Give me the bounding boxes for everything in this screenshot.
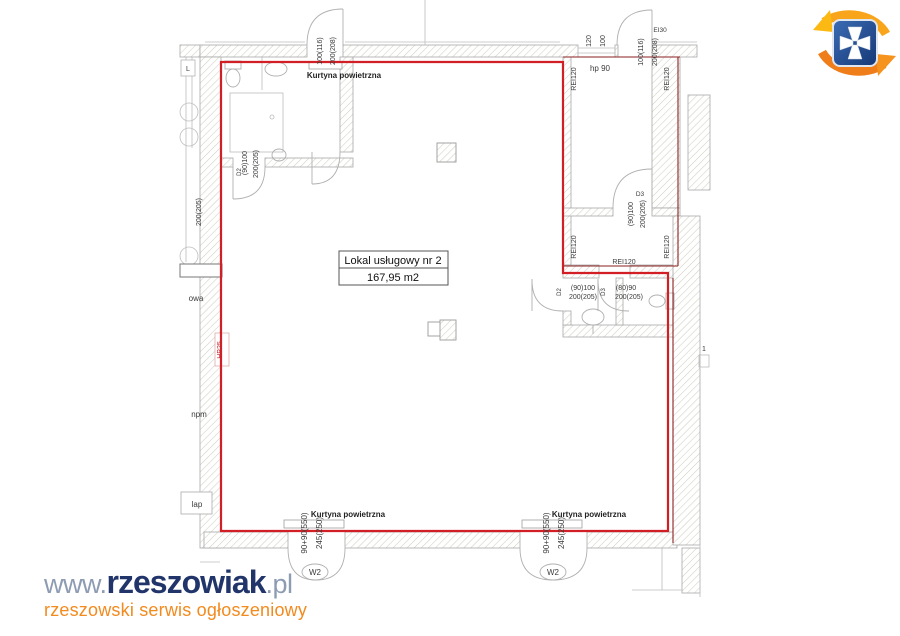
watermark-site: www.rzeszowiak.pl (44, 566, 307, 598)
crest-swoosh-top-arrow (813, 10, 833, 32)
watermark-www: www. (44, 569, 107, 599)
w2-dim-label: 245(250) (557, 517, 566, 549)
toilet (649, 295, 665, 307)
door-dim-label: 200(205) (615, 294, 643, 301)
rei120-label: REI120 (664, 235, 671, 258)
rei120-label: REI120 (612, 259, 635, 266)
door-dim-label: 200(208) (652, 38, 659, 66)
npm-label: npm (191, 410, 207, 419)
door-dim-label: 200(208) (330, 37, 337, 65)
door-dim-label: (90)100 (628, 202, 635, 226)
room-1-label: 1 (702, 346, 706, 353)
sink (582, 309, 604, 325)
door-dim-label: (90)100 (242, 151, 249, 175)
door-dim-label: 200(205) (640, 200, 647, 228)
w2-dim-label: 245(250) (315, 517, 324, 549)
watermark-tagline: rzeszowski serwis ogłoszeniowy (44, 601, 307, 619)
floor-plan-page: Lokal usługowy nr 2 167,95 m2 Kurtyna po… (0, 0, 900, 636)
w2-tag: W2 (547, 568, 560, 577)
door-code-label: D3 (601, 288, 607, 296)
watermark-logo: www.rzeszowiak.pl rzeszowski serwis ogło… (44, 566, 307, 619)
watermark-brand: rzeszowiak (107, 564, 266, 600)
air-curtain-label: Kurtyna powietrzna (307, 71, 382, 80)
watermark-tld: .pl (265, 569, 292, 599)
w2-tag: W2 (309, 568, 322, 577)
window-dim-label: 100 (600, 35, 607, 47)
door-code-label: D3 (636, 191, 645, 198)
sink (265, 62, 287, 76)
owa-wall (180, 264, 222, 277)
w2-dim-label: 90+90(550) (542, 512, 551, 553)
city-crest-logo (813, 10, 896, 76)
unit-area: 167,95 m2 (367, 272, 419, 284)
window-dim-label: 120 (586, 35, 593, 47)
parapet-label: hp 90 (590, 64, 611, 73)
door-dim-label: (80)90 (616, 285, 636, 292)
w2-dim-label: 90+90(550) (300, 512, 309, 553)
unit-label-box: Lokal usługowy nr 2 167,95 m2 (339, 251, 448, 285)
rei120-label: REI120 (571, 67, 578, 90)
door-dim-label: (90)100 (571, 285, 595, 292)
toilet (226, 69, 240, 87)
door-code-label: D2 (557, 288, 563, 296)
crest-swoosh-bottom-arrow (876, 54, 896, 76)
wall-dim-label: 200(205) (196, 198, 203, 226)
floor-plan-drawing: Lokal usługowy nr 2 167,95 m2 Kurtyna po… (0, 0, 900, 636)
column (437, 143, 456, 162)
hp25-label: HP25 (217, 341, 224, 359)
door-dim-label: 200(205) (569, 294, 597, 301)
structural-columns (428, 143, 456, 340)
lap-label: lap (192, 500, 203, 509)
unit-name: Lokal usługowy nr 2 (344, 255, 441, 267)
air-curtain-unit (522, 520, 582, 528)
room-l-label: L (186, 66, 190, 73)
owa-label: owa (189, 294, 204, 303)
rei120-label: REI120 (664, 67, 671, 90)
door-dim-label: 100(116) (638, 38, 645, 66)
rei120-label: REI120 (571, 235, 578, 258)
door-dim-label: 200(205) (253, 150, 260, 178)
ei30-label: EI30 (653, 27, 667, 34)
column (440, 320, 456, 340)
air-curtain-unit (284, 520, 344, 528)
door-dim-label: 100(116) (317, 37, 324, 65)
